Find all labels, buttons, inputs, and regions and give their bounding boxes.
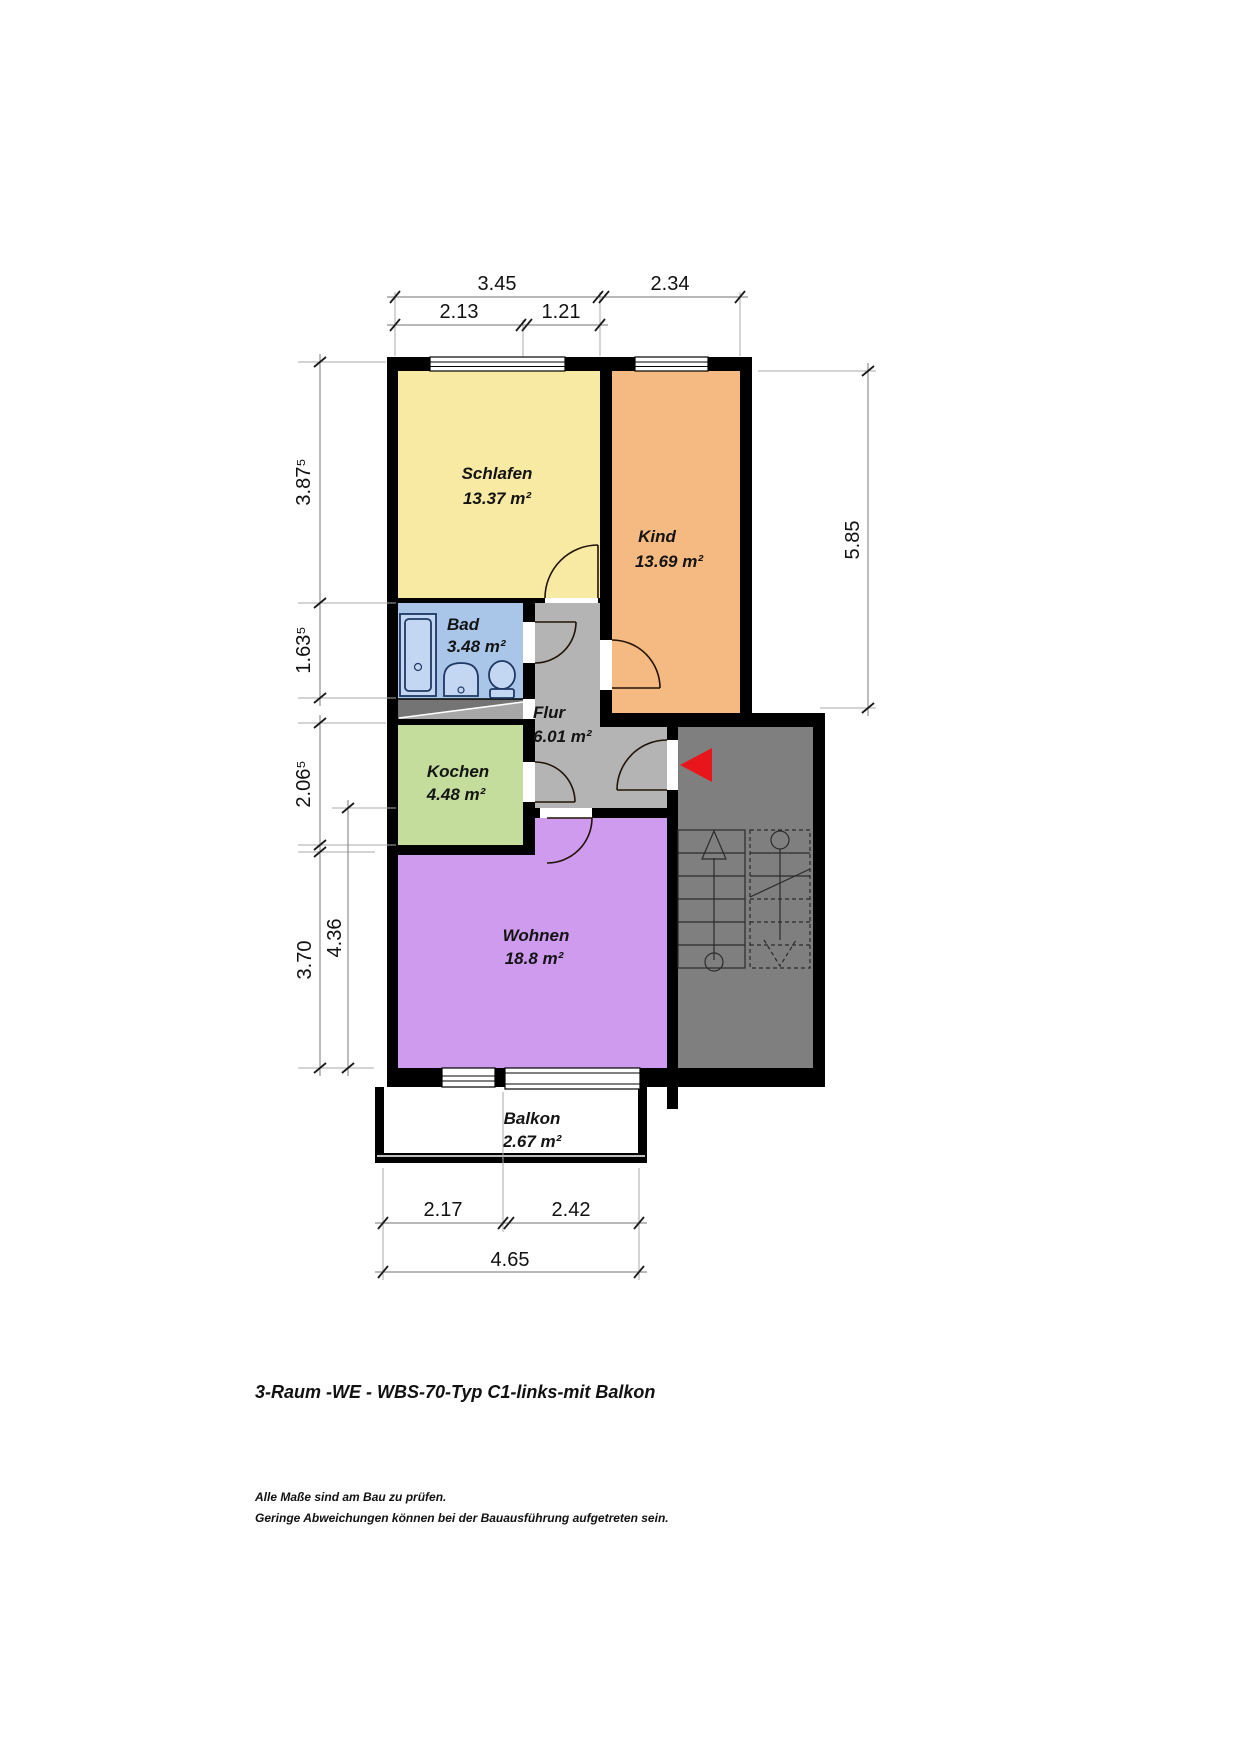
note-line-2: Geringe Abweichungen können bei der Baua… — [255, 1511, 669, 1525]
wall-left — [387, 357, 398, 1087]
door-gap-kind — [600, 640, 612, 690]
note-line-1: Alle Maße sind am Bau zu prüfen. — [254, 1490, 446, 1504]
wall-right-upper — [740, 357, 752, 725]
label-balkon: Balkon — [504, 1109, 561, 1128]
door-gap-kochen — [523, 762, 535, 802]
wall-kind-bottom-stair-top — [600, 713, 825, 727]
toilet-bowl-icon — [489, 661, 515, 689]
label-kochen-area: 4.48 m² — [426, 785, 487, 804]
window-wohnen — [442, 1068, 495, 1087]
wall-stair-right — [813, 713, 825, 1087]
door-gap-wohnen — [540, 808, 592, 818]
dim-top-1: 3.45 — [478, 273, 517, 295]
label-kochen: Kochen — [427, 762, 489, 781]
label-flur: Flur — [533, 703, 566, 722]
shaft-strip — [398, 699, 523, 719]
wall-kochen-wohnen — [387, 845, 535, 855]
dim-topsub-2: 1.21 — [542, 301, 581, 323]
wall-stub-below — [667, 1087, 678, 1109]
wall-balkon-right — [638, 1087, 647, 1160]
dim-top-2: 2.34 — [651, 273, 690, 295]
dim-right: 5.85 — [842, 521, 864, 560]
window-kind — [635, 357, 708, 371]
label-balkon-area: 2.67 m² — [502, 1132, 563, 1151]
label-bad: Bad — [447, 615, 480, 634]
sink-icon — [444, 663, 478, 696]
door-gap-bad — [523, 622, 535, 663]
label-kind: Kind — [638, 527, 676, 546]
label-schlafen: Schlafen — [462, 464, 533, 483]
label-kind-area: 13.69 m² — [635, 552, 704, 571]
room-kind — [612, 371, 740, 713]
floor-plan-drawing: Schlafen 13.37 m² Kind 13.69 m² Bad 3.48… — [0, 0, 1240, 1754]
balkon-door — [505, 1068, 640, 1089]
label-schlafen-area: 13.37 m² — [463, 489, 532, 508]
label-wohnen-area: 18.8 m² — [505, 949, 565, 968]
wall-balkon-left — [375, 1087, 384, 1160]
floor-plan-page: Schlafen 13.37 m² Kind 13.69 m² Bad 3.48… — [0, 0, 1240, 1754]
dim-left-1: 3.87⁵ — [293, 458, 315, 505]
door-gap-entry — [667, 740, 678, 790]
label-wohnen: Wohnen — [503, 926, 570, 945]
door-gap-schlafen — [545, 598, 598, 603]
dim-left-2: 1.63⁵ — [293, 626, 315, 673]
label-flur-area: 6.01 m² — [533, 727, 593, 746]
shower-tray-icon — [405, 619, 431, 691]
balkon-railing — [375, 1153, 647, 1163]
dim-bottomsub-1: 2.17 — [424, 1199, 463, 1221]
dim-bottomsub-2: 2.42 — [552, 1199, 591, 1221]
label-bad-area: 3.48 m² — [447, 637, 507, 656]
toilet-tank-icon — [490, 689, 514, 698]
dim-left-4: 3.70 — [294, 941, 316, 980]
window-schlafen — [430, 357, 565, 371]
plan-title: 3-Raum -WE - WBS-70-Typ C1-links-mit Bal… — [255, 1382, 655, 1402]
dim-topsub-1: 2.13 — [440, 301, 479, 323]
dim-bottom: 4.65 — [491, 1249, 530, 1271]
dim-left-inner: 4.36 — [324, 919, 346, 958]
wall-kochen-top — [398, 719, 535, 725]
room-schlafen — [398, 371, 600, 598]
dim-left-3: 2.06⁵ — [293, 760, 315, 807]
